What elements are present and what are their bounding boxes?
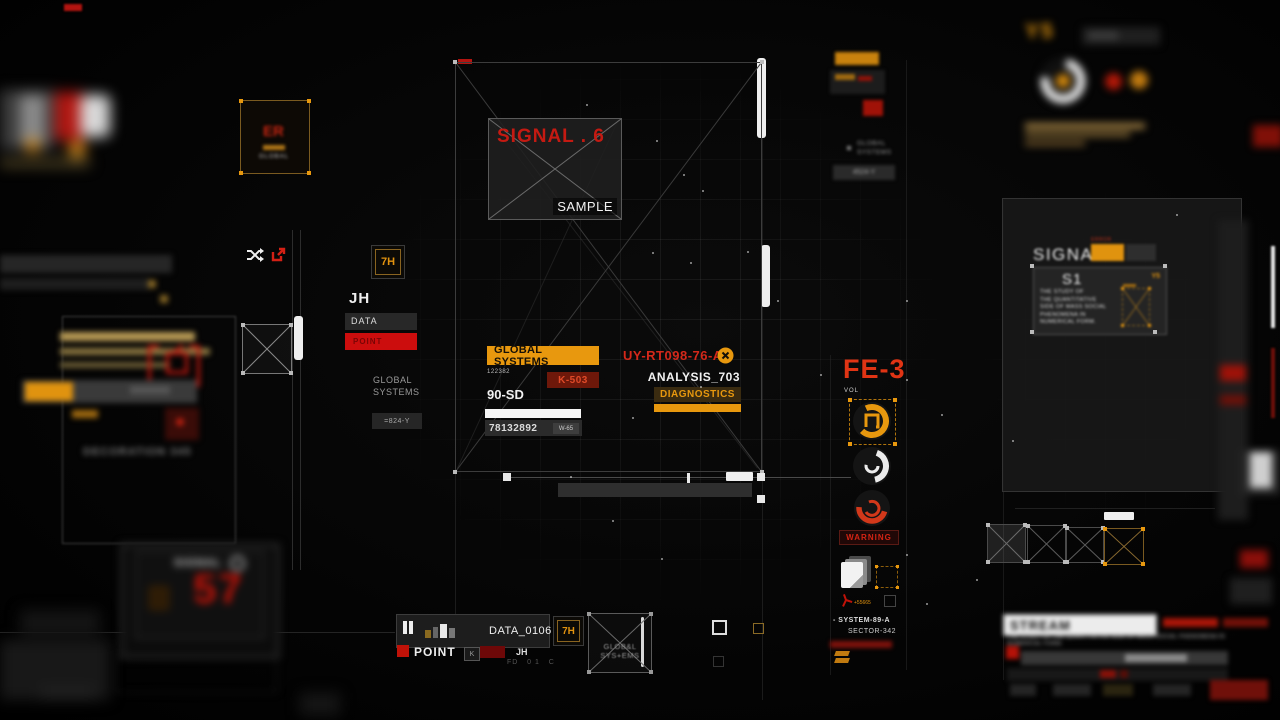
k-code-chip: K-503 [547,372,599,388]
panel-bar-track [1126,244,1156,261]
badge-7h: 7H [553,616,584,646]
analysis-label: ANALYSIS_703 [620,370,740,384]
accent-bar [294,316,303,360]
export-icon[interactable] [270,246,287,263]
initials-jh: JH [349,290,370,307]
k-chip: K [464,647,480,661]
number-value: 78132892 [489,423,538,434]
point-chip-label: POINT [353,337,382,346]
warning-chip: WARNING [839,530,899,545]
wirebox-selected [1104,528,1144,565]
code-chip: =824-Y [372,413,422,429]
line-endpoint [757,473,765,481]
diagnostics-label: DIAGNOSTICS [660,389,735,400]
decor-orange-dash [263,145,285,150]
audio-levels [425,623,457,639]
selection-frame-small [876,566,898,588]
right-panel: SIGNAL ERROR S1 Y5 THE STUDY OF THE QUAN… [1002,198,1242,492]
data-chip-label: DATA [351,316,378,326]
loader-icon-orange [852,401,892,446]
panel-info-box: S1 Y5 THE STUDY OF THE QUANTITATIVE SIDE… [1033,267,1167,335]
global-systems-bar[interactable]: GLOBAL SYSTEMS [487,346,599,365]
plus-code: +55665 [854,600,871,606]
shuffle-icon[interactable] [246,248,264,262]
er-title: ER [263,123,284,140]
marker-square-dim [713,656,724,667]
data-chip[interactable]: DATA [345,313,417,330]
y5-label: Y5 [1151,273,1160,280]
global-systems-label: GLOBALSYSTEMS [373,374,420,398]
code-uy: UY-RT098-76-A [623,348,723,363]
marker-square-dim [753,623,764,634]
accent-bar [726,472,753,481]
fe3-title: FE-3 [843,354,906,385]
edge-highlight [1271,246,1275,328]
decor-top-right: Y5 [1010,15,1280,160]
upper-right-cluster: GLOBALSYSTEMS 4524-Y [825,40,915,190]
signal-title: SIGNAL . 6 [497,126,605,148]
guide-line [1015,508,1215,509]
point-label: POINT [414,645,456,659]
sd-code: 90-SD [487,387,524,402]
badge-7h: 7H [371,245,405,279]
left-blur-panel: DECORATION 345 [0,295,250,525]
loader-icon-white [852,446,892,491]
guide-line [830,355,831,675]
faint-readout: FD 0 1 C [507,659,555,666]
guide-line [506,477,851,478]
sample-label: SAMPLE [553,198,617,215]
accent-bar [761,245,770,307]
panel-error-label: ERROR [1091,237,1112,243]
stack-icon [835,651,851,664]
accent-bar [1104,512,1134,520]
point-marker [397,645,409,657]
dashed-thumb [1122,288,1150,326]
stream-panel: STREAM THE STUDY OF THE QUANTITATIVE SID… [995,608,1280,720]
point-chip[interactable]: POINT [345,333,417,350]
upper-code-chip: 4524-Y [833,165,895,180]
signal-sample-box: SIGNAL . 6 SAMPLE [488,118,622,220]
diagnostics-chip[interactable]: DIAGNOSTICS [654,387,741,402]
guide-line [300,230,301,570]
progress-track[interactable] [558,483,752,497]
marker-square [712,620,727,635]
decor-blur-bottomleft [0,598,340,720]
panel-desc: THE STUDY OF THE QUANTITATIVE SIDE OF MA… [1040,289,1107,327]
wirebox [242,324,292,374]
wirebox [1066,527,1104,563]
layers-icon[interactable] [841,556,873,590]
bracket-export-icon [148,345,200,381]
ghost-square [884,595,896,607]
wirebox [987,524,1026,563]
stream-desc: THE STUDY OF THE QUANTITATIVE SIDE OF MA… [1007,634,1232,648]
s1-label: S1 [1062,271,1082,288]
sector-label: SECTOR-342 [848,628,896,635]
hud-stage: ER GLOBAL DECORATION 345 [0,0,1280,720]
y5-title: Y5 [1025,20,1055,44]
player-box: DATA_0106 [396,614,550,648]
glitch-label: GLOB&LSYS+EMS [589,642,651,660]
line-endpoint [757,495,765,503]
er-box: ER GLOBAL [240,100,310,174]
loader-icon-red [853,489,891,532]
decor-red-line [830,641,892,648]
decoration-caption: DECORATION 345 [83,446,192,458]
gauge-icon [1035,53,1091,114]
wirebox [1027,525,1066,563]
line-endpoint [503,473,511,481]
stream-title: STREAM [1010,618,1071,633]
glitch-wirebox: GLOB&LSYS+EMS [588,613,652,673]
file-label: DATA_0106 [489,625,552,637]
upper-global-label: GLOBALSYSTEMS [857,140,892,157]
edge-red [1271,348,1275,418]
guide-line [292,230,293,570]
orange-progress [654,404,741,412]
global-systems-bar-label: GLOBAL SYSTEMS [494,344,599,368]
er-sub: GLOBAL [259,154,289,160]
vol-label: VOL [844,388,859,394]
white-progress [485,409,581,418]
initials-jh-small: JH [516,647,528,657]
w-code-chip: W-65 [553,423,579,434]
line-tick [687,473,690,483]
decor-red-dash [64,4,82,11]
stream-titlebar[interactable]: STREAM [1003,614,1157,636]
system-label: - SYSTEM-89-A [833,617,890,624]
panel-orange-bar[interactable] [1091,244,1124,261]
serial-number: 122382 [487,369,510,375]
decor-blur-topleft [0,80,125,180]
red-bar [480,646,505,658]
guide-line [762,60,763,700]
pause-button[interactable] [403,621,415,635]
number-chip: 78132892 W-65 [485,420,582,436]
close-icon[interactable] [717,347,734,364]
